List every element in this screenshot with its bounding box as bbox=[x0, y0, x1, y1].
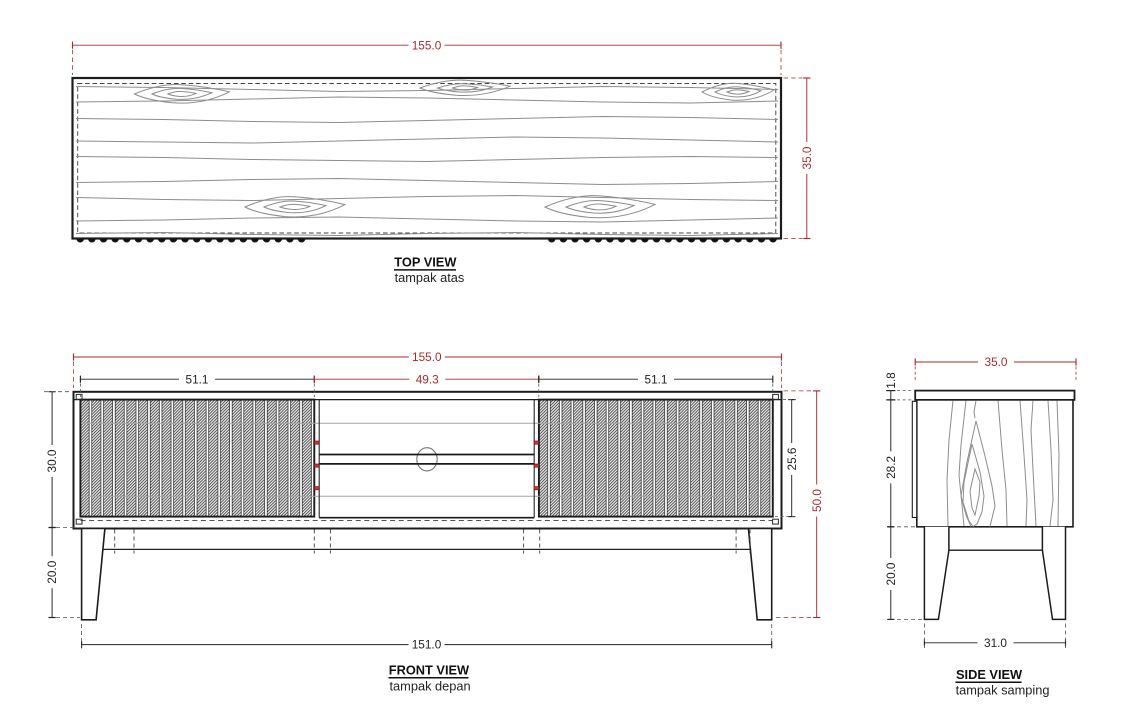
svg-text:51.1: 51.1 bbox=[645, 372, 668, 386]
svg-text:31.0: 31.0 bbox=[984, 636, 1007, 650]
svg-text:20.0: 20.0 bbox=[45, 560, 59, 583]
svg-text:tampak depan: tampak depan bbox=[390, 678, 471, 693]
svg-text:51.1: 51.1 bbox=[186, 372, 209, 386]
svg-text:35.0: 35.0 bbox=[985, 355, 1008, 369]
svg-text:20.0: 20.0 bbox=[884, 562, 898, 585]
svg-text:FRONT VIEW: FRONT VIEW bbox=[389, 662, 470, 677]
svg-text:50.0: 50.0 bbox=[810, 489, 824, 512]
svg-text:35.0: 35.0 bbox=[800, 146, 814, 169]
svg-text:49.3: 49.3 bbox=[416, 372, 439, 386]
svg-text:155.0: 155.0 bbox=[412, 350, 442, 364]
svg-text:155.0: 155.0 bbox=[412, 38, 442, 52]
svg-text:28.2: 28.2 bbox=[884, 456, 898, 479]
svg-text:SIDE VIEW: SIDE VIEW bbox=[956, 667, 1023, 682]
svg-text:25.6: 25.6 bbox=[785, 447, 799, 470]
svg-text:1.8: 1.8 bbox=[884, 372, 898, 389]
svg-text:30.0: 30.0 bbox=[45, 449, 59, 472]
svg-text:tampak atas: tampak atas bbox=[395, 270, 465, 285]
svg-text:TOP VIEW: TOP VIEW bbox=[394, 255, 457, 270]
svg-text:tampak samping: tampak samping bbox=[956, 683, 1050, 698]
svg-text:151.0: 151.0 bbox=[412, 638, 442, 652]
